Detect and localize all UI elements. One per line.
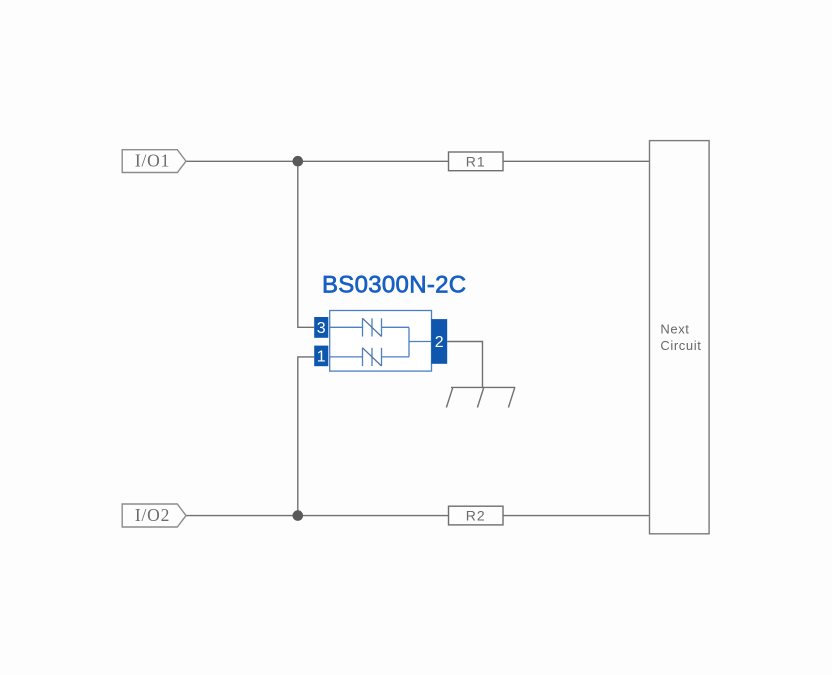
svg-text:I/O2: I/O2 — [135, 505, 170, 525]
svg-text:1: 1 — [317, 349, 326, 366]
svg-text:3: 3 — [317, 320, 326, 337]
svg-text:Circuit: Circuit — [660, 338, 701, 353]
svg-text:R1: R1 — [466, 153, 486, 169]
svg-text:2: 2 — [435, 334, 444, 351]
svg-text:I/O1: I/O1 — [135, 151, 170, 171]
svg-text:Next: Next — [660, 321, 689, 336]
svg-text:R2: R2 — [466, 508, 486, 524]
svg-text:BS0300N-2C: BS0300N-2C — [322, 272, 466, 299]
